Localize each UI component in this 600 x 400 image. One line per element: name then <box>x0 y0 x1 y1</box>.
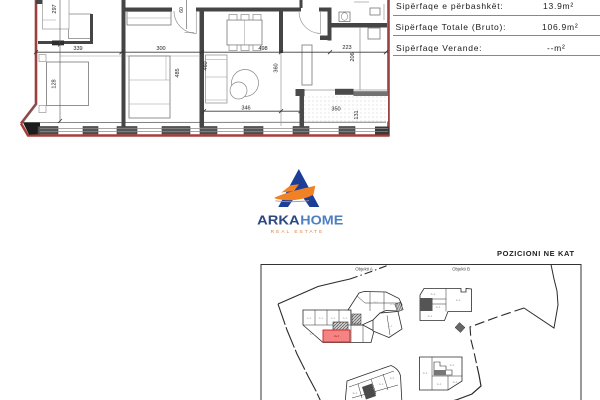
svg-text:1+1: 1+1 <box>390 376 395 380</box>
svg-text:REAL ESTATE: REAL ESTATE <box>271 229 325 235</box>
svg-text:Objekti B: Objekti B <box>452 267 470 272</box>
svg-text:128: 128 <box>52 79 58 88</box>
svg-text:1+1: 1+1 <box>307 316 312 320</box>
svg-text:339: 339 <box>73 46 82 52</box>
svg-text:ARKA: ARKA <box>257 213 300 228</box>
svg-text:485: 485 <box>175 68 181 77</box>
svg-text:1+1: 1+1 <box>390 302 395 306</box>
svg-text:2+1: 2+1 <box>334 334 339 338</box>
svg-text:1+1: 1+1 <box>428 314 433 318</box>
svg-text:223: 223 <box>342 45 351 51</box>
svg-text:131: 131 <box>354 110 360 119</box>
svg-text:2+1: 2+1 <box>310 332 315 336</box>
svg-text:60: 60 <box>179 7 185 13</box>
svg-text:2+1: 2+1 <box>450 363 455 367</box>
svg-text:1+1: 1+1 <box>388 324 393 328</box>
svg-text:1+1: 1+1 <box>379 382 384 386</box>
svg-text:2+1: 2+1 <box>374 300 379 304</box>
svg-text:1+1: 1+1 <box>436 305 441 309</box>
svg-text:297: 297 <box>52 4 58 13</box>
svg-text:346: 346 <box>241 106 250 112</box>
svg-text:1+1: 1+1 <box>423 371 428 375</box>
svg-text:2+1: 2+1 <box>353 391 358 395</box>
svg-text:300: 300 <box>156 46 165 52</box>
svg-text:1+1: 1+1 <box>343 316 348 320</box>
svg-text:206: 206 <box>350 52 356 61</box>
svg-text:1+1: 1+1 <box>319 316 324 320</box>
svg-text:350: 350 <box>331 106 340 112</box>
svg-text:2+1: 2+1 <box>431 292 436 296</box>
svg-text:HOME: HOME <box>300 213 344 228</box>
svg-text:360: 360 <box>274 63 280 72</box>
svg-text:460: 460 <box>203 61 209 70</box>
svg-text:1+1: 1+1 <box>456 298 461 302</box>
svg-text:1+1: 1+1 <box>453 380 458 384</box>
svg-text:Objekti A: Objekti A <box>355 267 373 272</box>
svg-text:498: 498 <box>258 46 267 52</box>
svg-text:1+1: 1+1 <box>331 316 336 320</box>
svg-text:1+1: 1+1 <box>437 382 442 386</box>
